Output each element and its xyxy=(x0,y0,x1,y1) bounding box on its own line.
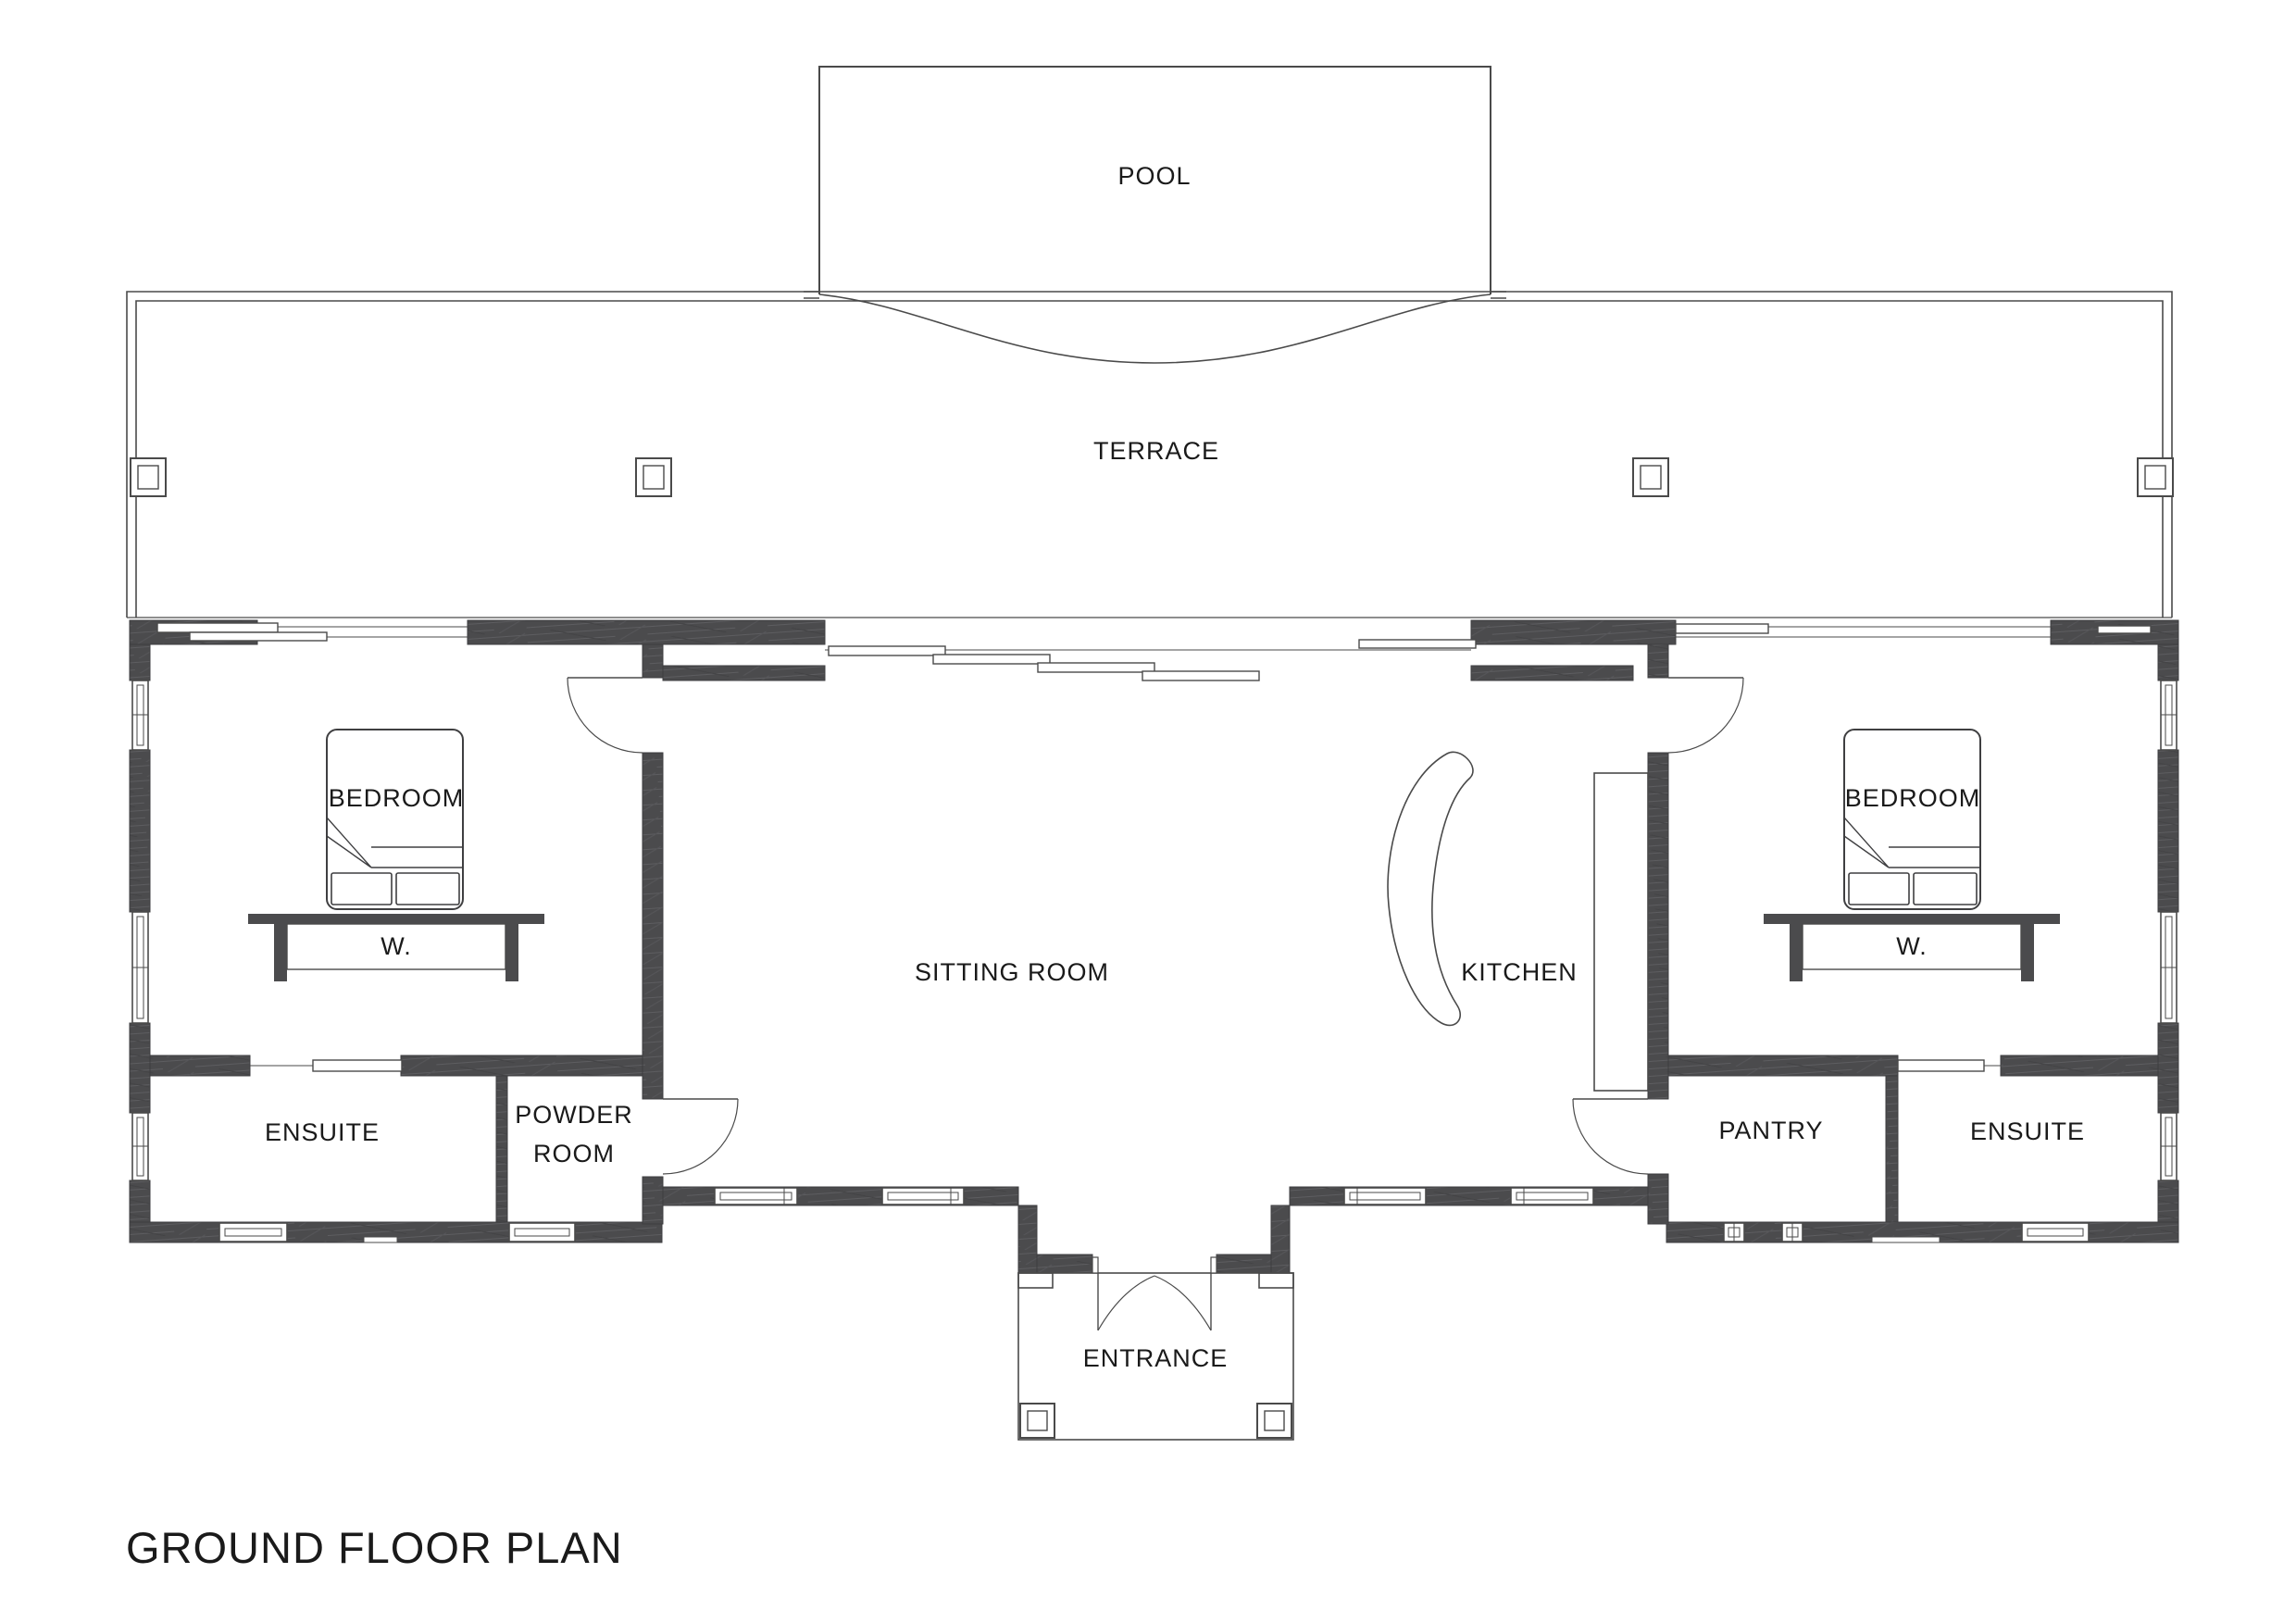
pool-outline xyxy=(804,67,1506,363)
label-entrance: ENTRANCE xyxy=(1083,1339,1229,1378)
label-powder-room-line1: POWDER xyxy=(515,1095,633,1134)
exterior-walls xyxy=(130,620,2178,1273)
hinged-doors xyxy=(568,678,1743,1174)
label-ensuite-left: ENSUITE xyxy=(265,1113,380,1152)
kitchen-counter xyxy=(1594,773,1648,1091)
label-kitchen: KITCHEN xyxy=(1461,953,1578,992)
label-powder-room: POWDER ROOM xyxy=(515,1095,633,1173)
label-pantry: PANTRY xyxy=(1718,1111,1823,1150)
kitchen-island xyxy=(1388,752,1473,1025)
label-bedroom-right: BEDROOM xyxy=(1845,779,1981,818)
label-terrace: TERRACE xyxy=(1093,431,1219,470)
bed-left xyxy=(327,730,463,909)
label-wardrobe-left: W. xyxy=(381,927,412,966)
page-title: GROUND FLOOR PLAN xyxy=(126,1522,623,1573)
label-bedroom-left: BEDROOM xyxy=(329,779,465,818)
floor-plan-canvas: POOL TERRACE BEDROOM BEDROOM W. W. SITTI… xyxy=(0,0,2296,1623)
label-pool: POOL xyxy=(1117,156,1191,195)
bed-right xyxy=(1844,730,1980,909)
label-powder-room-line2: ROOM xyxy=(515,1134,633,1173)
label-ensuite-right: ENSUITE xyxy=(1970,1112,2085,1151)
label-sitting-room: SITTING ROOM xyxy=(915,953,1109,992)
label-wardrobe-right: W. xyxy=(1896,927,1928,966)
